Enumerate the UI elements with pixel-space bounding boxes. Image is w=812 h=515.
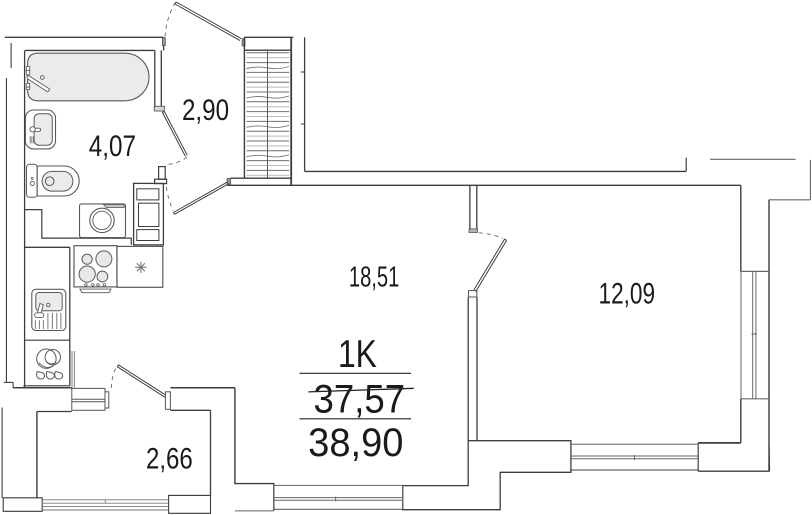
svg-text:12,09: 12,09: [599, 278, 656, 311]
svg-text:37,57: 37,57: [314, 377, 406, 422]
svg-text:38,90: 38,90: [308, 421, 403, 465]
svg-text:4,07: 4,07: [89, 130, 136, 163]
svg-text:1K: 1K: [338, 333, 377, 376]
svg-text:18,51: 18,51: [349, 262, 400, 294]
svg-text:2,90: 2,90: [182, 94, 229, 127]
svg-text:2,66: 2,66: [146, 442, 193, 475]
